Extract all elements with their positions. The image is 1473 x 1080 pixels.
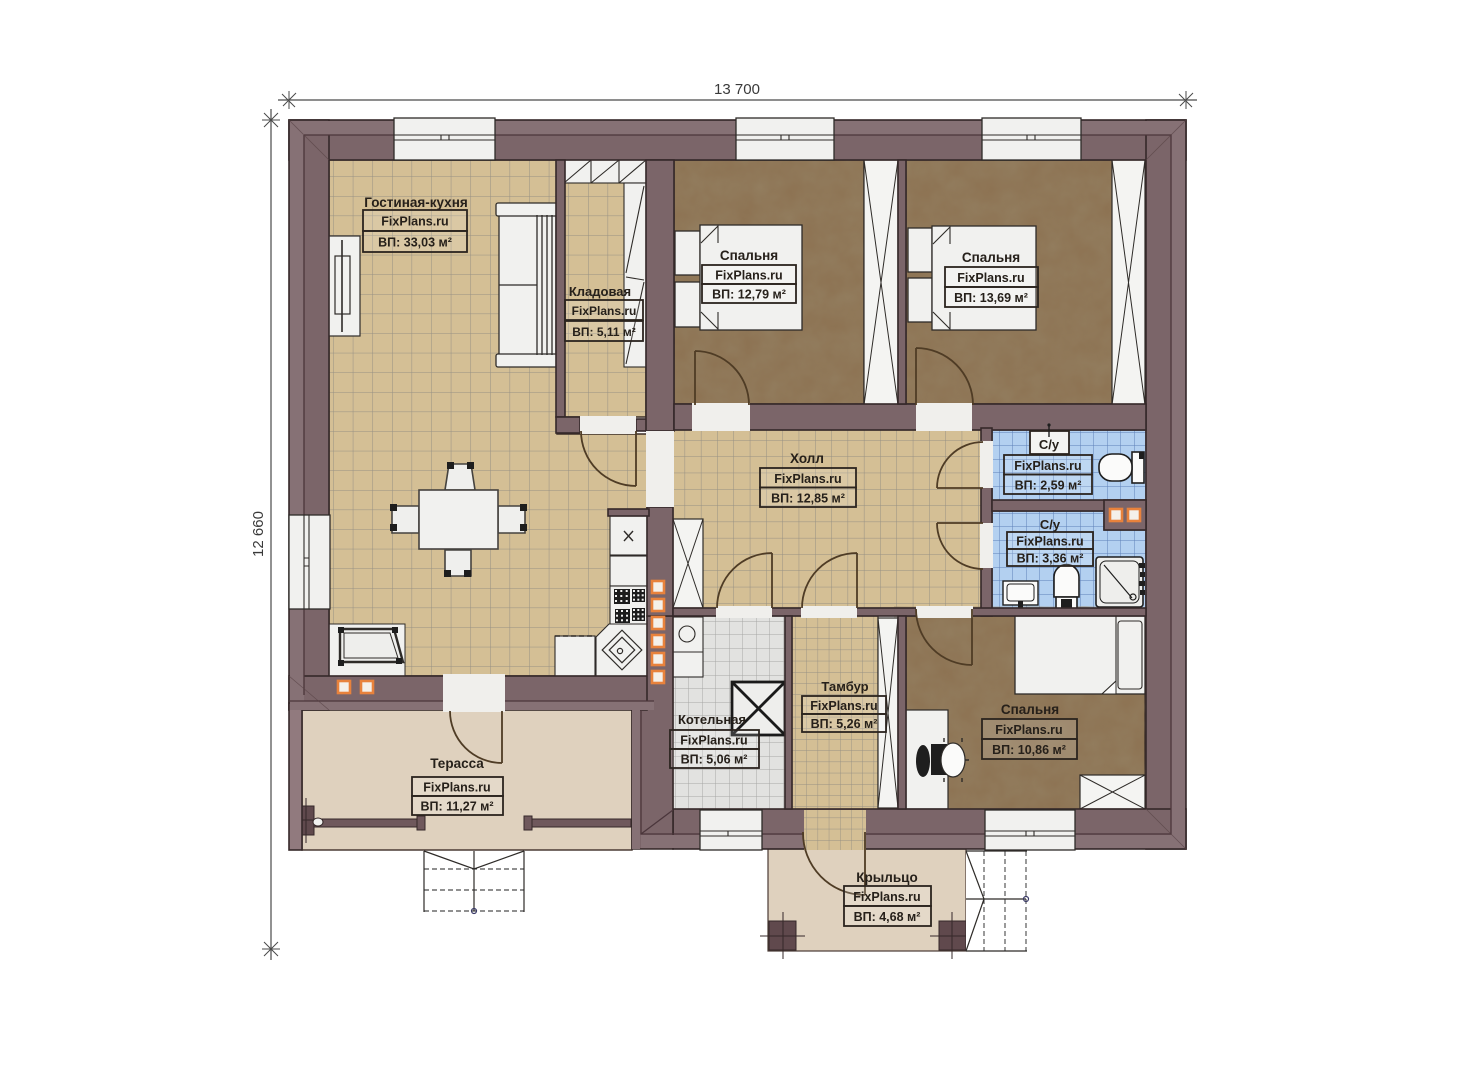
svg-text:Кладовая: Кладовая — [569, 284, 631, 299]
svg-text:ВП: 4,68 м²: ВП: 4,68 м² — [854, 910, 921, 924]
svg-text:ВП: 5,06 м²: ВП: 5,06 м² — [681, 753, 748, 767]
svg-text:FixPlans.ru: FixPlans.ru — [810, 699, 877, 713]
svg-text:Терасса: Терасса — [430, 756, 484, 771]
svg-text:ВП: 11,27 м²: ВП: 11,27 м² — [420, 800, 493, 814]
svg-text:FixPlans.ru: FixPlans.ru — [957, 271, 1024, 285]
svg-text:ВП: 12,79 м²: ВП: 12,79 м² — [712, 288, 786, 302]
svg-text:12 660: 12 660 — [250, 511, 267, 557]
svg-text:FixPlans.ru: FixPlans.ru — [1016, 535, 1083, 549]
svg-text:ВП: 10,86 м²: ВП: 10,86 м² — [992, 743, 1066, 757]
svg-text:FixPlans.ru: FixPlans.ru — [715, 269, 782, 283]
svg-text:Холл: Холл — [790, 451, 824, 466]
svg-text:ВП: 3,36 м²: ВП: 3,36 м² — [1017, 552, 1084, 566]
svg-text:FixPlans.ru: FixPlans.ru — [680, 734, 747, 748]
svg-text:ВП: 33,03 м²: ВП: 33,03 м² — [378, 236, 452, 250]
svg-text:Спальня: Спальня — [962, 250, 1020, 265]
svg-text:Гостиная-кухня: Гостиная-кухня — [364, 195, 467, 210]
svg-text:ВП: 13,69 м²: ВП: 13,69 м² — [954, 291, 1028, 305]
svg-text:FixPlans.ru: FixPlans.ru — [1014, 459, 1081, 473]
svg-text:ВП: 12,85 м²: ВП: 12,85 м² — [771, 492, 845, 506]
svg-text:ВП: 5,26 м²: ВП: 5,26 м² — [811, 717, 878, 731]
svg-text:FixPlans.ru: FixPlans.ru — [853, 890, 920, 904]
svg-text:С/у: С/у — [1039, 437, 1060, 452]
svg-text:FixPlans.ru: FixPlans.ru — [995, 723, 1062, 737]
svg-text:FixPlans.ru: FixPlans.ru — [423, 781, 490, 795]
svg-text:Тамбур: Тамбур — [821, 679, 868, 694]
svg-text:FixPlans.ru: FixPlans.ru — [774, 472, 841, 486]
svg-text:FixPlans.ru: FixPlans.ru — [572, 304, 637, 318]
svg-text:Котельная: Котельная — [678, 712, 746, 727]
svg-text:С/у: С/у — [1040, 517, 1061, 532]
svg-text:ВП: 2,59 м²: ВП: 2,59 м² — [1015, 479, 1082, 493]
svg-text:Крыльцо: Крыльцо — [856, 870, 917, 885]
svg-text:FixPlans.ru: FixPlans.ru — [381, 215, 448, 229]
svg-text:Спальня: Спальня — [1001, 702, 1059, 717]
svg-text:ВП: 5,11 м²: ВП: 5,11 м² — [572, 325, 636, 339]
svg-text:Спальня: Спальня — [720, 248, 778, 263]
svg-text:13 700: 13 700 — [714, 81, 760, 98]
